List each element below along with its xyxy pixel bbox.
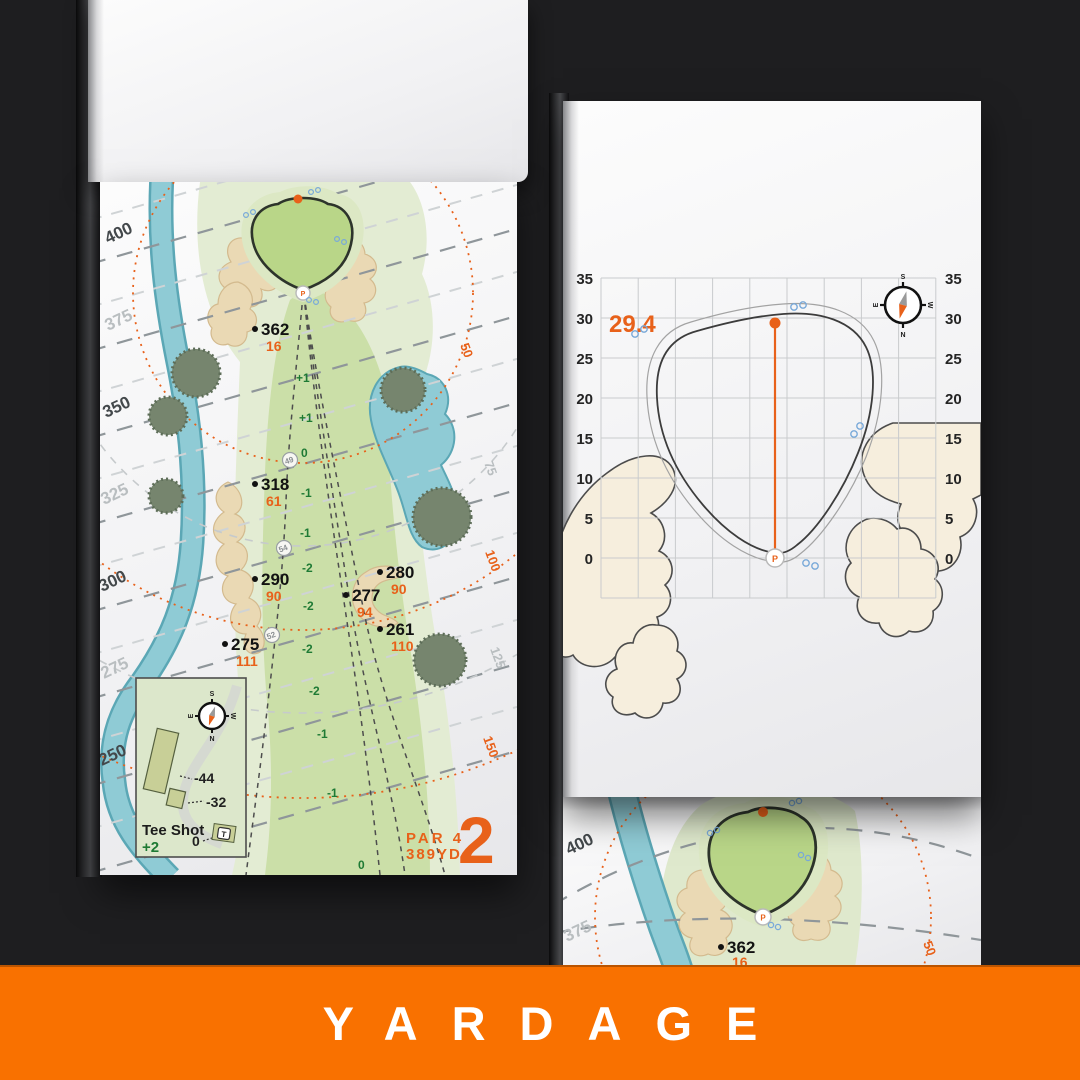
svg-text:20: 20: [945, 391, 962, 408]
tee-dist-long: -44: [194, 770, 214, 786]
svg-text:-1: -1: [301, 486, 312, 500]
green-page-compass: S N E W: [873, 274, 933, 339]
front-edge-dot: [758, 807, 768, 817]
svg-text:15: 15: [945, 431, 962, 448]
right-green-page: 35 30 25 20 15 10 5 0 35 30 25 20 15 10 …: [563, 101, 981, 797]
compass-e: E: [873, 302, 880, 307]
svg-text:10: 10: [576, 471, 593, 488]
svg-text:90: 90: [391, 581, 407, 597]
svg-text:277: 277: [352, 586, 380, 605]
svg-text:61: 61: [266, 493, 282, 509]
arc-label: 50: [920, 939, 939, 958]
svg-text:0: 0: [945, 551, 953, 568]
svg-text:20: 20: [576, 391, 593, 408]
depth-value: 29.4: [609, 311, 656, 338]
hole-map: P 49 54 52 +1 +1 0 -1 -1 -2 -2 -2 -2 -1 …: [100, 182, 517, 875]
svg-text:5: 5: [585, 511, 593, 528]
compass-s: S: [210, 691, 215, 698]
svg-text:35: 35: [576, 271, 593, 288]
svg-text:-2: -2: [302, 642, 313, 656]
bunkers: [563, 423, 981, 718]
svg-text:+1: +1: [299, 411, 313, 425]
compass-n: N: [900, 332, 905, 339]
pin-letter: P: [772, 554, 778, 564]
svg-text:362: 362: [261, 320, 289, 339]
arc-labels: 50 75 100 125 150: [457, 341, 509, 760]
compass-e: E: [188, 713, 195, 718]
svg-text:375: 375: [102, 305, 136, 334]
green-depth-chart: 35 30 25 20 15 10 5 0 35 30 25 20 15 10 …: [563, 101, 981, 797]
svg-text:-2: -2: [309, 684, 320, 698]
right-bottom-map-page: P 362 16 400 375 50: [563, 797, 981, 967]
hole-number: 2: [458, 803, 495, 875]
svg-text:400: 400: [563, 829, 596, 858]
svg-text:10: 10: [945, 471, 962, 488]
svg-text:0: 0: [301, 446, 308, 460]
svg-text:94: 94: [357, 604, 373, 620]
green-contours: [647, 304, 882, 563]
tee-dist-short: -32: [206, 794, 226, 810]
svg-text:110: 110: [391, 638, 414, 654]
svg-text:-1: -1: [327, 786, 338, 800]
left-flipped-page: [88, 0, 528, 182]
svg-text:0: 0: [585, 551, 593, 568]
svg-text:275: 275: [231, 635, 259, 654]
sprinkler-icons: [632, 302, 863, 569]
yardage-banner: YARDAGE: [0, 965, 1080, 1080]
pin-letter: P: [760, 914, 766, 923]
svg-text:-2: -2: [303, 599, 314, 613]
svg-text:+1: +1: [296, 371, 310, 385]
svg-text:16: 16: [266, 338, 282, 354]
svg-text:-1: -1: [300, 526, 311, 540]
svg-text:25: 25: [576, 351, 593, 368]
svg-text:275: 275: [100, 653, 131, 682]
svg-text:0: 0: [358, 858, 365, 872]
svg-text:75: 75: [481, 459, 500, 478]
svg-text:15: 15: [576, 431, 593, 448]
hole-map-detail: P 362 16 400 375 50: [563, 797, 981, 967]
svg-text:350: 350: [100, 392, 133, 421]
svg-text:318: 318: [261, 475, 289, 494]
hole-yards: 389YD: [406, 846, 462, 863]
svg-text:290: 290: [261, 570, 289, 589]
svg-text:25: 25: [945, 351, 962, 368]
banner-title: YARDAGE: [289, 996, 792, 1051]
tee-box-short: [166, 788, 185, 808]
svg-text:5: 5: [945, 511, 953, 528]
svg-text:90: 90: [266, 588, 282, 604]
svg-text:30: 30: [576, 311, 593, 328]
svg-text:30: 30: [945, 311, 962, 328]
tee-shot-inset: -44 -32 0 T Tee Shot +2 S N E W: [136, 678, 246, 857]
svg-text:280: 280: [386, 563, 414, 582]
svg-text:400: 400: [102, 218, 136, 247]
svg-text:300: 300: [100, 566, 129, 595]
tee-marker-icon: T: [212, 824, 236, 843]
hole-par: PAR 4: [406, 830, 464, 847]
pin-marker: P: [755, 909, 771, 925]
compass-w: W: [926, 302, 933, 309]
page-curl: [88, 0, 104, 182]
svg-text:325: 325: [100, 479, 131, 508]
compass-w: W: [229, 713, 236, 720]
pin-letter: P: [301, 291, 306, 298]
tee-distance-labels: 400 375: [563, 829, 596, 945]
svg-text:-1: -1: [317, 727, 328, 741]
svg-text:35: 35: [945, 271, 962, 288]
svg-text:111: 111: [236, 653, 258, 669]
svg-text:375: 375: [563, 916, 594, 945]
compass-s: S: [901, 274, 906, 281]
front-edge-dot: [294, 195, 303, 204]
svg-text:-2: -2: [302, 561, 313, 575]
svg-text:100: 100: [482, 548, 504, 574]
distance-marker: 275 111: [222, 635, 259, 669]
svg-text:50: 50: [457, 341, 476, 360]
compass-n: N: [209, 736, 214, 743]
inset-title: Tee Shot: [142, 822, 204, 839]
svg-text:261: 261: [386, 620, 414, 639]
left-map-page: P 49 54 52 +1 +1 0 -1 -1 -2 -2 -2 -2 -1 …: [100, 182, 517, 875]
inset-score: +2: [142, 839, 159, 856]
